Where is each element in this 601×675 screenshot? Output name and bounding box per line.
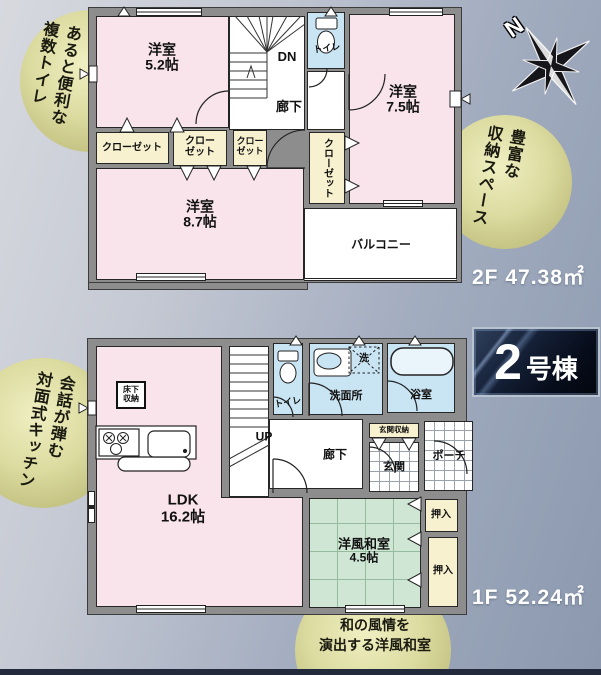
floor-plan-1f: LDK 16.2帖 UP トイレ 洗面所 洗 浴室 廊下 玄関収納 玄関 ポーチ…: [87, 338, 467, 615]
label-closet-1: クローゼット: [102, 143, 162, 154]
label-entrance-storage: 玄関収納: [379, 426, 409, 434]
label-up: UP: [256, 430, 273, 443]
label-hallway-1f: 廊下: [323, 448, 347, 461]
badge-suffix: 号棟: [526, 356, 578, 382]
floor-plan-page: 洋室 5.2帖 DN トイレ 廊下 洋室 7.5帖 クローゼット クローゼット …: [0, 0, 601, 675]
label-room-87: 洋室 8.7帖: [183, 200, 216, 231]
label-room-75: 洋室 7.5帖: [386, 85, 419, 116]
label-washer: 洗: [359, 354, 369, 365]
badge-number: 2: [494, 337, 522, 387]
area-1f: 1F 52.24㎡: [472, 581, 585, 611]
label-washroom: 洗面所: [330, 390, 363, 402]
label-porch: ポーチ: [433, 450, 466, 462]
label-entrance: 玄関: [383, 461, 405, 473]
label-room-52: 洋室 5.2帖: [145, 43, 178, 74]
area-2f: 2F 47.38㎡: [472, 261, 585, 291]
label-bathroom: 浴室: [410, 389, 432, 401]
label-underfloor-storage: 床下収納: [121, 386, 141, 404]
label-hallway-2f: 廊下: [276, 100, 302, 114]
label-closet-4: クローゼット: [322, 138, 333, 198]
building-badge: 2 号棟: [472, 327, 600, 397]
label-closet-2: クローゼット: [183, 136, 217, 158]
label-tatami: 洋風和室 4.5帖: [338, 537, 390, 564]
callout-tatami: 和の風情を 演出する洋風和室: [287, 616, 463, 655]
label-dn: DN: [278, 50, 297, 64]
bottom-bar: [0, 669, 601, 675]
label-ldk: LDK 16.2帖: [161, 493, 205, 526]
label-oshiire-2: 押入: [433, 566, 453, 577]
label-closet-3: クローゼット: [235, 137, 265, 157]
label-oshiire-1: 押入: [431, 510, 451, 521]
label-balcony: バルコニー: [351, 238, 411, 251]
floor-plan-2f: 洋室 5.2帖 DN トイレ 廊下 洋室 7.5帖 クローゼット クローゼット …: [88, 7, 462, 283]
plan-1f-linework: [88, 339, 466, 614]
